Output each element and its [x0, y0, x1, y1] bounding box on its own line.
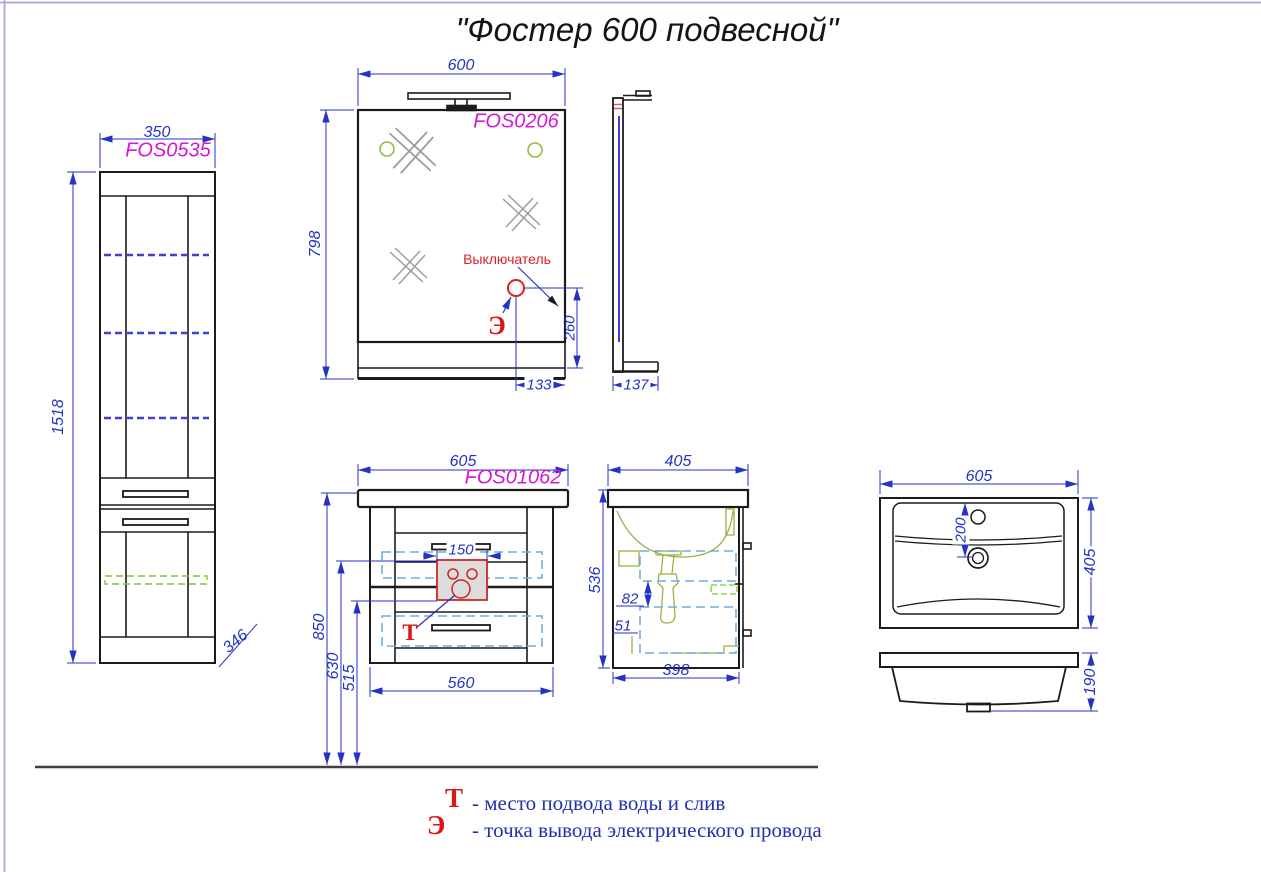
mirror-leaders — [503, 267, 558, 313]
dim-vanity-side-a: 82 — [622, 591, 639, 608]
dim-inlet-width: 150 — [446, 542, 475, 559]
model-label-vanity: FOS01062 — [465, 467, 562, 490]
switch-point — [508, 280, 524, 296]
dim-switch-offset: 133 — [524, 377, 553, 394]
dim-mirror-depth: 137 — [621, 377, 650, 394]
sink-front-view — [880, 653, 1078, 712]
vanity-side-drawer-boxes — [640, 551, 736, 653]
dim-sink-width: 605 — [966, 468, 993, 486]
dim-sink-depth: 405 — [1082, 547, 1100, 578]
electric-symbol: Э — [488, 311, 506, 341]
model-label-cabinet: FOS0535 — [125, 140, 211, 163]
dim-inlet-bottom: 515 — [341, 665, 359, 692]
tall-cabinet-dimensions — [67, 133, 257, 667]
drawing-sheet: "Фостер 600 подвесной" 350 FOS0535 1518 … — [0, 0, 1261, 872]
sink-top-view — [880, 498, 1078, 628]
dim-mirror-width: 600 — [448, 57, 475, 75]
dim-vanity-height: 850 — [311, 614, 329, 641]
vanity-side-view — [608, 490, 751, 668]
vanity-side-shelf — [711, 585, 737, 594]
dim-cabinet-height: 1518 — [50, 399, 68, 435]
dim-vanity-side-depth: 405 — [665, 453, 692, 471]
mirror-mount-holes — [380, 142, 542, 157]
mirror-side-marks — [614, 105, 622, 109]
drawing-title: "Фостер 600 подвесной" — [456, 11, 839, 49]
legend-electric-symbol: Э — [427, 810, 445, 841]
water-symbol: Т — [402, 620, 417, 646]
dim-switch-height: 260 — [562, 315, 579, 340]
dim-sink-height: 190 — [1082, 667, 1100, 698]
legend-water-text: - место подвода воды и слив — [472, 791, 725, 816]
model-label-mirror: FOS0206 — [473, 111, 559, 134]
water-inlet-zone — [437, 560, 487, 600]
sheet-frame — [0, 0, 1261, 872]
mirror-view — [358, 93, 565, 379]
vanity-dimensions — [321, 464, 568, 765]
dim-vanity-side-bottom: 398 — [663, 662, 690, 680]
dim-vanity-body-width: 560 — [448, 675, 475, 693]
legend-electric-text: - точка вывода электрического провода — [472, 818, 822, 843]
dim-vanity-side-b: 51 — [615, 618, 632, 635]
dim-sink-drain-offset: 200 — [953, 515, 970, 544]
tall-cabinet-shelves — [104, 255, 209, 418]
legend-water-symbol: Т — [445, 783, 463, 814]
switch-label: Выключатель — [463, 251, 551, 267]
tall-cabinet-bottom-shelf — [105, 576, 207, 584]
dim-vanity-side-height: 536 — [587, 567, 605, 594]
drawing-canvas — [0, 0, 1261, 872]
dim-mirror-height: 798 — [307, 231, 325, 258]
